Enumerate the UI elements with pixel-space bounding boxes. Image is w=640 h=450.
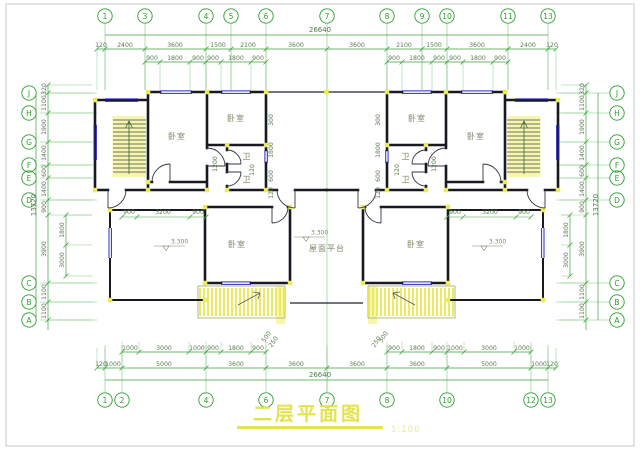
dim-label: 600 bbox=[579, 165, 586, 177]
inner-dim-label: 1200 bbox=[212, 156, 219, 172]
dim-label: 900 bbox=[579, 201, 586, 213]
elevation-value: 3.300 bbox=[489, 239, 506, 246]
dim-label: 900 bbox=[388, 55, 400, 62]
dim-label: 1800 bbox=[563, 222, 570, 238]
dim-label: 3600 bbox=[469, 42, 485, 49]
dim-label: 900 bbox=[207, 345, 219, 352]
axis-label-top: 1 bbox=[103, 12, 108, 21]
room-label: 卧室 bbox=[408, 113, 426, 123]
elevation-triangle-icon bbox=[303, 237, 309, 242]
inner-dim-label: 600 bbox=[375, 170, 382, 182]
axis-label-bottom: 10 bbox=[442, 396, 452, 405]
dim-label: 1000 bbox=[447, 345, 463, 352]
dim-label: 1000 bbox=[531, 361, 547, 368]
terrace-walls bbox=[110, 210, 205, 300]
total-dim-bottom: 26640 bbox=[309, 371, 331, 379]
dim-label: 1000 bbox=[514, 345, 530, 352]
left-unit-geometry bbox=[93, 90, 329, 324]
drawing-scale: 1:100 bbox=[391, 425, 421, 435]
dim-label: 5000 bbox=[481, 361, 497, 368]
axis-label-right: A bbox=[614, 316, 620, 325]
column bbox=[225, 188, 230, 193]
dim-label: 1000 bbox=[189, 345, 205, 352]
dim-label: 1800 bbox=[470, 55, 486, 62]
dim-label: 3000 bbox=[59, 252, 66, 268]
inner-dim-label: 900 bbox=[192, 209, 204, 216]
room-label: 卧室 bbox=[168, 131, 186, 141]
dim-label: 1800 bbox=[59, 222, 66, 238]
inner-dim-label: 300 bbox=[268, 114, 275, 126]
room-label: 卧室 bbox=[467, 131, 485, 141]
dim-label: 3600 bbox=[288, 361, 304, 368]
axis-label-left: G bbox=[26, 138, 32, 147]
inner-dim-label: 600 bbox=[268, 170, 275, 182]
dim-label: 900 bbox=[192, 55, 204, 62]
axis-label-top: 3 bbox=[143, 12, 148, 21]
dim-label: 120 bbox=[546, 42, 558, 49]
dim-label: 900 bbox=[146, 55, 158, 62]
axis-label-right: F bbox=[615, 161, 619, 170]
dim-label: 3600 bbox=[228, 361, 244, 368]
column bbox=[146, 90, 151, 95]
column bbox=[205, 90, 210, 95]
dim-label: 1100 bbox=[41, 284, 48, 300]
dim-label: 1400 bbox=[579, 181, 586, 197]
dim-label: 1800 bbox=[167, 55, 183, 62]
axis-label-left: A bbox=[26, 316, 32, 325]
axis-label-bottom: 2 bbox=[120, 396, 125, 405]
column bbox=[108, 208, 113, 213]
dim-label: 1500 bbox=[426, 42, 442, 49]
axis-label-top: 7 bbox=[325, 12, 330, 21]
dim-label: 1800 bbox=[228, 345, 244, 352]
dim-label: 3600 bbox=[349, 42, 365, 49]
column bbox=[108, 298, 113, 303]
column bbox=[146, 180, 151, 185]
axis-label-left: E bbox=[27, 174, 32, 183]
room-label: 卫 bbox=[402, 152, 411, 161]
dim-label: 2400 bbox=[117, 42, 133, 49]
axis-label-right: E bbox=[615, 174, 620, 183]
dim-label: 5000 bbox=[156, 361, 172, 368]
inner-dim-label: 1800 bbox=[375, 142, 382, 158]
dim-label: 1400 bbox=[41, 181, 48, 197]
dim-label: 3000 bbox=[563, 252, 570, 268]
dim-label: 2400 bbox=[520, 42, 536, 49]
inner-dim-label: 300 bbox=[375, 114, 382, 126]
dim-label: 120 bbox=[95, 42, 107, 49]
axis-label-right: J bbox=[615, 89, 618, 98]
inner-dim-label: 3200 bbox=[482, 209, 498, 216]
floor-plan-drawing: 13456789101113124678101213JHGFEDCBAJHGFE… bbox=[0, 0, 640, 450]
room-label: 卫 bbox=[243, 152, 252, 161]
dim-label: 3600 bbox=[288, 42, 304, 49]
dim-label: 3900 bbox=[579, 241, 586, 257]
axis-label-top: 9 bbox=[420, 12, 425, 21]
dim-label: 1900 bbox=[41, 119, 48, 135]
dim-label: 3600 bbox=[349, 361, 365, 368]
dim-label: 3000 bbox=[156, 345, 172, 352]
axis-label-top: 6 bbox=[264, 12, 269, 21]
canopy-hatch bbox=[200, 288, 284, 316]
elevation-triangle-icon bbox=[481, 246, 487, 251]
dim-label: 2100 bbox=[240, 42, 256, 49]
axis-label-top: 4 bbox=[204, 12, 209, 21]
column bbox=[203, 298, 208, 303]
axis-label-right: D bbox=[614, 196, 620, 205]
dim-label: 3600 bbox=[409, 361, 425, 368]
inner-dim-label: 900 bbox=[449, 209, 461, 216]
dim-label: 1500 bbox=[210, 42, 226, 49]
dim-label: 900 bbox=[252, 345, 264, 352]
inner-dim-label: 900 bbox=[123, 209, 135, 216]
total-dim-left: 13720 bbox=[30, 194, 38, 216]
column bbox=[288, 281, 293, 286]
canopy-hatch-lines bbox=[200, 288, 284, 316]
column bbox=[205, 188, 210, 193]
dim-label: 900 bbox=[433, 55, 445, 62]
axis-label-left: H bbox=[26, 109, 32, 118]
dim-label: 900 bbox=[207, 55, 219, 62]
axis-label-top: 13 bbox=[543, 12, 553, 21]
dim-label: 1800 bbox=[409, 345, 425, 352]
dim-label: 320 bbox=[41, 83, 48, 95]
room-label: 屋面平台 bbox=[309, 243, 345, 253]
dim-label: 3000 bbox=[481, 345, 497, 352]
elevation-value: 3.300 bbox=[311, 230, 328, 237]
room-label: 卧室 bbox=[227, 113, 245, 123]
column bbox=[203, 281, 208, 286]
axis-label-top: 11 bbox=[503, 12, 513, 21]
dim-label: 1100 bbox=[41, 95, 48, 111]
column bbox=[93, 188, 98, 193]
inner-dim-label: 1200 bbox=[431, 156, 438, 172]
dim-label: 2100 bbox=[396, 42, 412, 49]
dim-label: 1000 bbox=[105, 361, 121, 368]
dim-label: 900 bbox=[388, 345, 400, 352]
axis-label-top: 8 bbox=[385, 12, 390, 21]
dim-label: 900 bbox=[449, 55, 461, 62]
axis-label-left: F bbox=[27, 161, 31, 170]
dim-label: 1900 bbox=[579, 119, 586, 135]
axis-label-top: 10 bbox=[442, 12, 452, 21]
grid-lines bbox=[40, 24, 610, 392]
axis-label-right: G bbox=[614, 138, 620, 147]
axis-label-bottom: 1 bbox=[103, 396, 108, 405]
inner-dim-label: 1800 bbox=[268, 142, 275, 158]
dim-label: 1800 bbox=[228, 55, 244, 62]
room-label: 卧室 bbox=[407, 239, 425, 249]
axis-label-right: H bbox=[614, 109, 620, 118]
axis-label-bottom: 8 bbox=[385, 396, 390, 405]
inner-dim-label: 120 bbox=[375, 187, 382, 199]
dim-label: 1100 bbox=[41, 303, 48, 319]
axis-label-top: 5 bbox=[229, 12, 234, 21]
dim-label: 320 bbox=[579, 83, 586, 95]
axis-label-right: C bbox=[614, 279, 619, 288]
axis-label-bottom: 13 bbox=[543, 396, 553, 405]
elevation-value: 3.300 bbox=[171, 239, 188, 246]
dim-label: 1400 bbox=[41, 145, 48, 161]
dim-label: 1100 bbox=[579, 284, 586, 300]
dim-label: 1800 bbox=[409, 55, 425, 62]
dim-label: 900 bbox=[252, 55, 264, 62]
column bbox=[225, 143, 230, 148]
total-dim-top: 26640 bbox=[309, 26, 331, 34]
dim-label: 3900 bbox=[41, 241, 48, 257]
column bbox=[146, 188, 151, 193]
room-label: 卫 bbox=[243, 175, 252, 184]
dim-label: 1000 bbox=[122, 345, 138, 352]
room-label: 卧室 bbox=[228, 239, 246, 249]
dim-label: 900 bbox=[494, 55, 506, 62]
dim-label: 120 bbox=[546, 361, 558, 368]
dim-label: 1400 bbox=[579, 145, 586, 161]
dim-label: 600 bbox=[41, 165, 48, 177]
axis-label-bottom: 12 bbox=[526, 396, 536, 405]
inner-dim-label: 900 bbox=[518, 209, 530, 216]
axis-label-left: J bbox=[27, 89, 30, 98]
dim-label: 900 bbox=[433, 345, 445, 352]
parapet-lines bbox=[266, 92, 327, 303]
axis-label-left: B bbox=[26, 298, 31, 307]
drawing-sheet: 13456789101113124678101213JHGFEDCBAJHGFE… bbox=[0, 0, 640, 450]
dim-label: 1100 bbox=[579, 303, 586, 319]
dim-label: 1100 bbox=[579, 95, 586, 111]
dim-label: 900 bbox=[41, 201, 48, 213]
column bbox=[93, 98, 98, 103]
axis-label-right: B bbox=[614, 298, 619, 307]
dim-label: 3600 bbox=[167, 42, 183, 49]
room-label: 卫 bbox=[402, 175, 411, 184]
inner-dim-label: 3200 bbox=[155, 209, 171, 216]
axis-label-bottom: 4 bbox=[204, 396, 209, 405]
total-dim-right: 13720 bbox=[592, 194, 600, 216]
title-underline bbox=[237, 426, 383, 429]
inner-dim-label: 120 bbox=[394, 164, 401, 176]
inner-dim-label: 120 bbox=[268, 187, 275, 199]
elevation-triangle-icon bbox=[163, 246, 169, 251]
right-unit-geometry bbox=[324, 90, 560, 324]
drawing-title: 二层平面图 bbox=[253, 403, 363, 425]
axis-label-left: C bbox=[26, 279, 31, 288]
column bbox=[264, 90, 269, 95]
